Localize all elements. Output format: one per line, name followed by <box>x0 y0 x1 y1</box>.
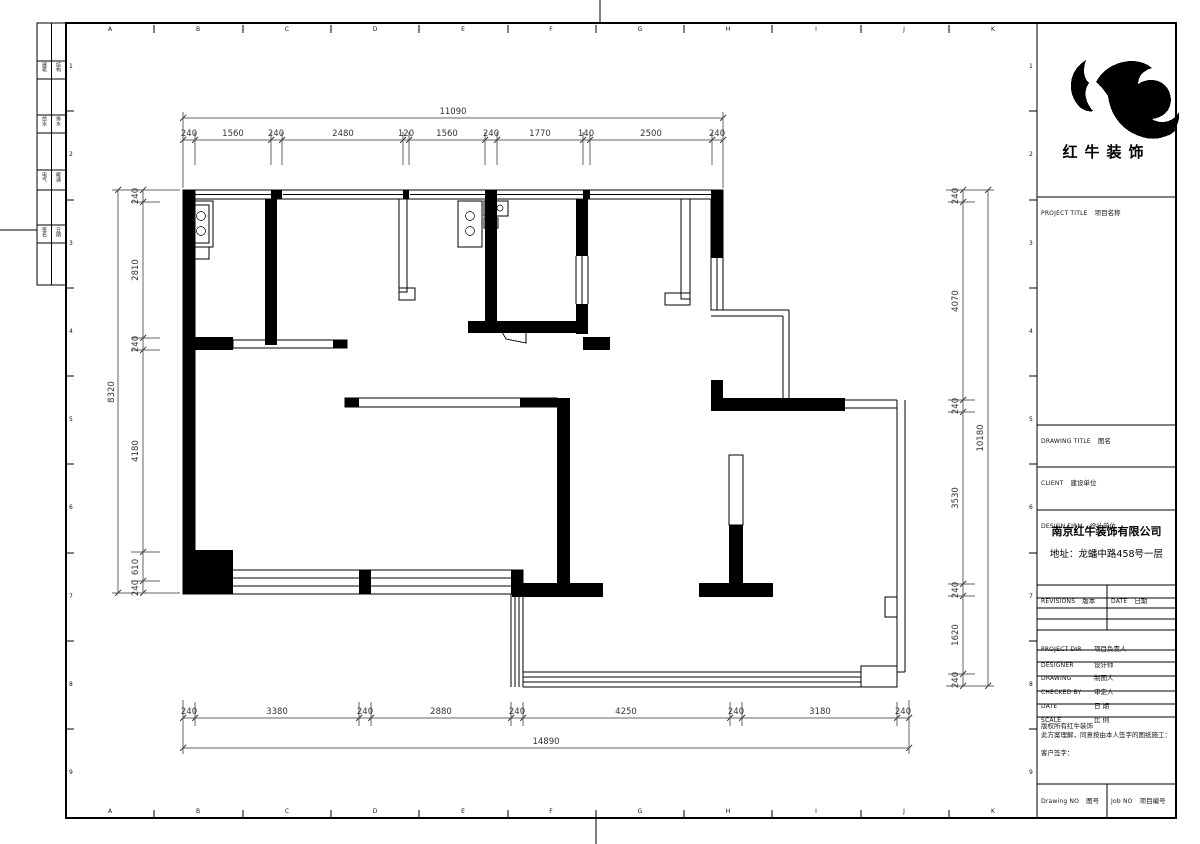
svg-text:8320: 8320 <box>107 381 117 403</box>
ruler-number: 2 <box>69 151 73 158</box>
ruler-letter: J <box>903 808 905 815</box>
ruler-number: 7 <box>69 593 73 600</box>
ruler-letter: I <box>815 808 817 815</box>
svg-text:14890: 14890 <box>532 737 559 747</box>
drawing-no-label: Drawing NO图号 <box>1041 788 1103 807</box>
company-logo-text: 红牛装饰 <box>1037 141 1176 162</box>
ruler-number: 1 <box>69 63 73 70</box>
svg-text:4180: 4180 <box>131 440 141 462</box>
ruler-letter: E <box>461 26 465 33</box>
svg-text:240: 240 <box>951 582 961 598</box>
svg-text:240: 240 <box>131 336 141 352</box>
svg-text:2500: 2500 <box>640 129 662 139</box>
svg-text:10180: 10180 <box>976 424 986 451</box>
company-address: 地址：龙蟠中路458号一层 <box>1037 546 1176 560</box>
svg-text:4250: 4250 <box>615 707 637 717</box>
countersign-label: 电气 <box>41 172 46 182</box>
svg-text:240: 240 <box>728 707 744 717</box>
rednbull-logo-icon <box>1071 60 1179 139</box>
ruler-letter: C <box>285 26 289 33</box>
drawing-title-label: DRAWING TITLE图名 <box>1041 428 1173 447</box>
svg-text:4070: 4070 <box>951 290 961 312</box>
countersign-label: 日期 <box>55 227 60 237</box>
ruler-number: 6 <box>1029 504 1033 511</box>
countersign-label: 签名 <box>41 227 46 237</box>
ruler-letter: B <box>196 808 200 815</box>
svg-text:240: 240 <box>951 398 961 414</box>
client-label: CLIENT建设单位 <box>1041 470 1173 489</box>
copyright-line2: 此方案理解，同意按由本人签字的图纸施工： <box>1041 729 1173 739</box>
fold-marks <box>0 0 600 844</box>
dimension-lines <box>112 112 994 754</box>
floor-plan <box>183 190 905 687</box>
svg-text:3380: 3380 <box>266 707 288 717</box>
svg-text:1560: 1560 <box>222 129 244 139</box>
svg-text:120: 120 <box>398 129 414 139</box>
countersign-label: 给水 <box>41 116 46 126</box>
ruler-number: 5 <box>1029 416 1033 423</box>
svg-text:240: 240 <box>483 129 499 139</box>
svg-text:3180: 3180 <box>809 707 831 717</box>
svg-text:3530: 3530 <box>951 487 961 509</box>
svg-text:2480: 2480 <box>332 129 354 139</box>
ruler-letter: E <box>461 808 465 815</box>
ruler-letter: F <box>549 26 552 33</box>
svg-text:1620: 1620 <box>951 624 961 646</box>
svg-text:240: 240 <box>268 129 284 139</box>
ruler-letter: G <box>638 808 643 815</box>
ruler-number: 4 <box>69 328 73 335</box>
svg-text:240: 240 <box>709 129 725 139</box>
svg-text:2810: 2810 <box>131 259 141 281</box>
date-header: DATE日期 <box>1111 588 1173 607</box>
svg-text:240: 240 <box>951 672 961 688</box>
svg-text:1560: 1560 <box>436 129 458 139</box>
ruler-letter: F <box>549 808 552 815</box>
ruler-letter: D <box>373 26 378 33</box>
svg-text:240: 240 <box>951 188 961 204</box>
sheet-border <box>0 0 1176 844</box>
ruler-number: 5 <box>69 416 73 423</box>
ruler-number: 8 <box>1029 681 1033 688</box>
countersign-label: 建筑 <box>41 62 46 72</box>
ruler-number: 4 <box>1029 328 1033 335</box>
svg-text:240: 240 <box>131 188 141 204</box>
revisions-header: REVISIONS版本 <box>1041 588 1103 607</box>
svg-text:140: 140 <box>578 129 594 139</box>
svg-text:2880: 2880 <box>430 707 452 717</box>
ruler-number: 9 <box>1029 769 1033 776</box>
svg-text:240: 240 <box>181 129 197 139</box>
floor-plan-drawing: 11090 240 1560 240 2480 120 1560 240 177… <box>0 0 1200 844</box>
svg-text:240: 240 <box>181 707 197 717</box>
svg-text:610: 610 <box>131 559 141 575</box>
ruler-letter: C <box>285 808 289 815</box>
ruler-number: 6 <box>69 504 73 511</box>
ruler-letter: H <box>726 808 731 815</box>
ruler-letter: D <box>373 808 378 815</box>
svg-text:11090: 11090 <box>439 107 466 117</box>
svg-text:240: 240 <box>357 707 373 717</box>
ruler-number: 7 <box>1029 593 1033 600</box>
countersign-label: 结构 <box>55 62 60 72</box>
client-signature-label: 客户签字： <box>1041 747 1173 757</box>
ruler-number: 8 <box>69 681 73 688</box>
ruler-number: 2 <box>1029 151 1033 158</box>
svg-text:240: 240 <box>131 580 141 596</box>
drawing-sheet: 11090 240 1560 240 2480 120 1560 240 177… <box>0 0 1200 844</box>
ruler-number: 3 <box>69 240 73 247</box>
ruler-letter: A <box>108 26 112 33</box>
svg-text:1770: 1770 <box>529 129 551 139</box>
sink-fixture-kitchen <box>458 201 508 247</box>
job-no-label: Job NO项目编号 <box>1111 788 1173 807</box>
ruler-number: 9 <box>69 769 73 776</box>
ruler-number: 1 <box>1029 63 1033 70</box>
svg-text:240: 240 <box>509 707 525 717</box>
svg-text:240: 240 <box>895 707 911 717</box>
countersign-label: 暖通 <box>55 172 60 182</box>
ruler-letter: H <box>726 26 731 33</box>
dimension-labels: 11090 240 1560 240 2480 120 1560 240 177… <box>107 107 986 747</box>
ruler-letter: G <box>638 26 643 33</box>
countersign-label: 排水 <box>55 116 60 126</box>
ruler-letter: J <box>903 26 905 33</box>
project-title-label: PROJECT TITLE项目名称 <box>1041 200 1173 219</box>
ruler-number: 3 <box>1029 240 1033 247</box>
ruler-letter: K <box>991 26 995 33</box>
ruler-letter: A <box>108 808 112 815</box>
ruler-letter: B <box>196 26 200 33</box>
ruler-letter: I <box>815 26 817 33</box>
company-name: 南京红牛装饰有限公司 <box>1037 523 1176 539</box>
ruler-letter: K <box>991 808 995 815</box>
